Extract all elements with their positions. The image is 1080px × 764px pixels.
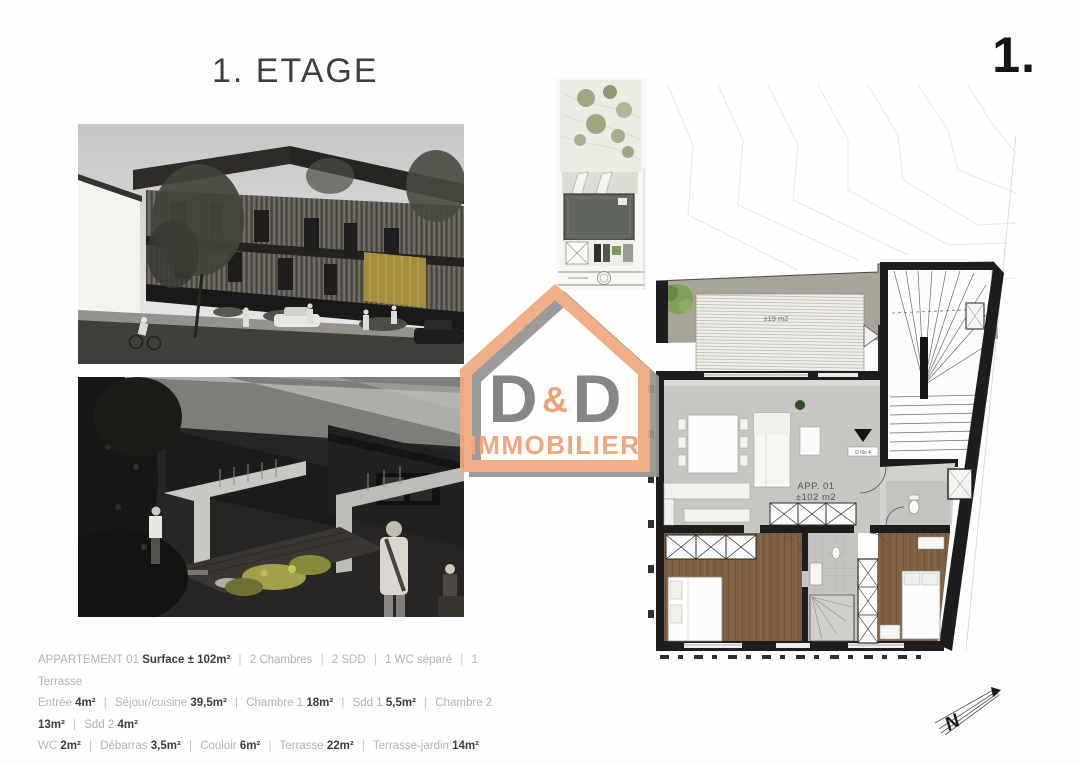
surface-value: Surface ± 102m² [142,654,230,666]
dining-table [688,415,738,473]
dd-immobilier-logo: D & D IMMOBILIER [452,282,662,474]
brochure-page: 1. ETAGE 1. [0,0,1080,764]
courtyard-garden-rendering [78,377,464,617]
terrain-contours [668,85,1016,285]
corridor-wardrobes [770,503,856,525]
logo-letter-d1: D [488,361,537,437]
toilet [832,547,840,559]
apartment-area-label: ±102 m2 [796,492,836,503]
sink [810,563,822,585]
page-title: 1. ETAGE [212,52,379,91]
building-roof [564,194,634,240]
entrance-area [564,240,634,266]
details-line-2: Entrée 4m² | Séjour/cuisine 39,5m² | Cha… [38,693,518,736]
feature-wc: 1 WC séparé [385,654,452,666]
bathroom-middle [808,533,858,641]
coffee-table [800,427,820,455]
apartment-number-label: APPARTEMENT 01 [38,654,139,666]
bed-left [668,577,722,641]
bed-right [902,571,940,639]
logo-ampersand: & [542,379,568,420]
bedroom-right [870,533,950,641]
page-number: 1. [992,26,1036,84]
wardrobe-column [858,559,878,643]
roof-terrace-band [562,172,638,194]
north-arrow-tip [991,687,1001,697]
wardrobe-row [666,535,756,559]
door-tag: D No 4 [855,450,871,456]
terrace-deck [696,294,864,374]
logo-letter-d2: D [572,361,621,437]
yellow-facade-section [364,252,426,308]
site-plan-thumbnail [556,78,646,290]
shaft-right [948,469,972,499]
feature-sdd: 2 SDD [332,654,366,666]
north-arrow: N [933,683,1005,739]
terrace-area-label: ±19 m2 [764,314,789,323]
plant [795,400,805,410]
details-line-1: APPARTEMENT 01 Surface ± 102m² | 2 Chamb… [38,650,518,693]
sofa [754,413,790,487]
logo-word: IMMOBILIER [470,430,641,460]
feature-chambres: 2 Chambres [250,654,313,666]
bedroom-left [664,533,802,641]
apartment-label: APP. 01 [797,481,834,492]
floor-plan-app-01: ±19 m2 ±7.8 m2 [648,85,1020,665]
exterior-street-rendering [78,124,464,364]
apartment-details: APPARTEMENT 01 Surface ± 102m² | 2 Chamb… [38,650,518,758]
details-line-3: WC 2m² | Débarras 3,5m² | Couloir 6m² | … [38,736,518,758]
garden-area [560,80,642,172]
wc-separe [886,481,950,525]
